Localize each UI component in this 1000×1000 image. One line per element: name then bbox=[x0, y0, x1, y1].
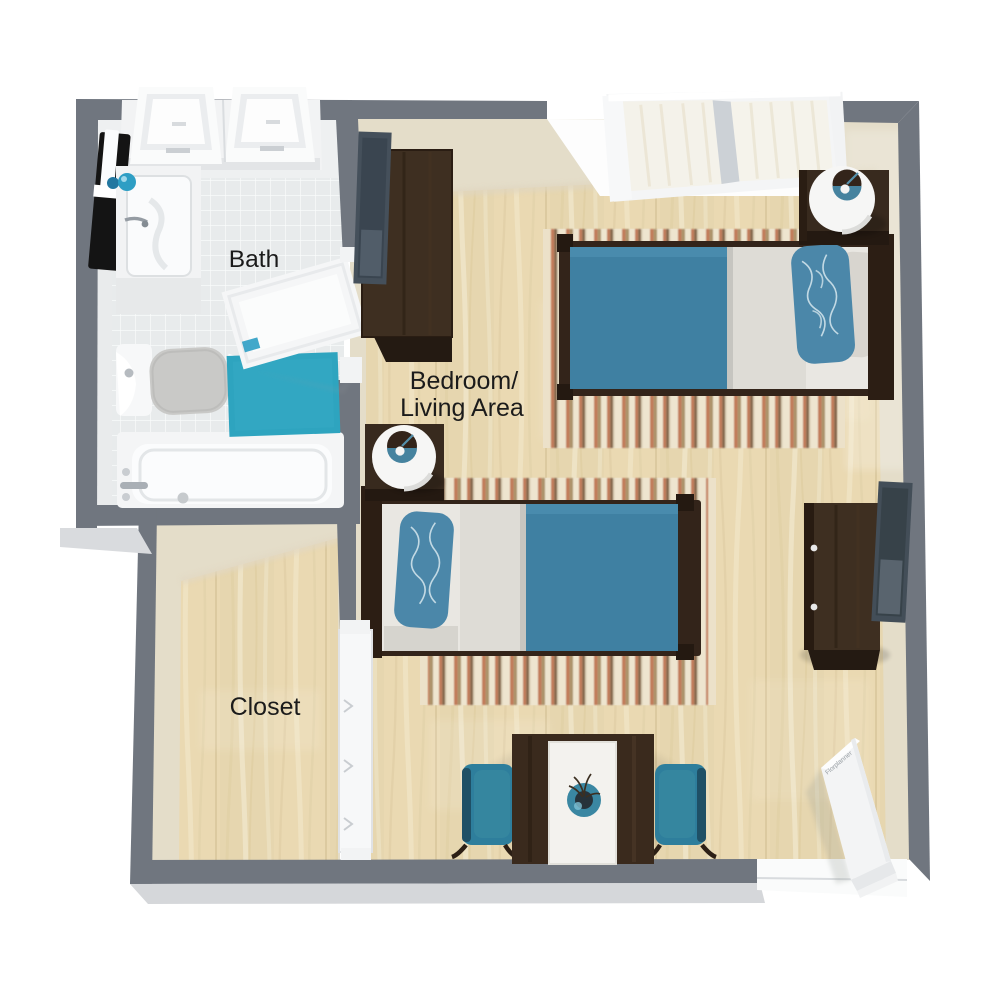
svg-text:Bedroom/: Bedroom/ bbox=[410, 367, 518, 395]
svg-text:Closet: Closet bbox=[230, 693, 301, 721]
svg-text:Living Area: Living Area bbox=[400, 394, 524, 422]
svg-text:Bath: Bath bbox=[229, 246, 279, 273]
